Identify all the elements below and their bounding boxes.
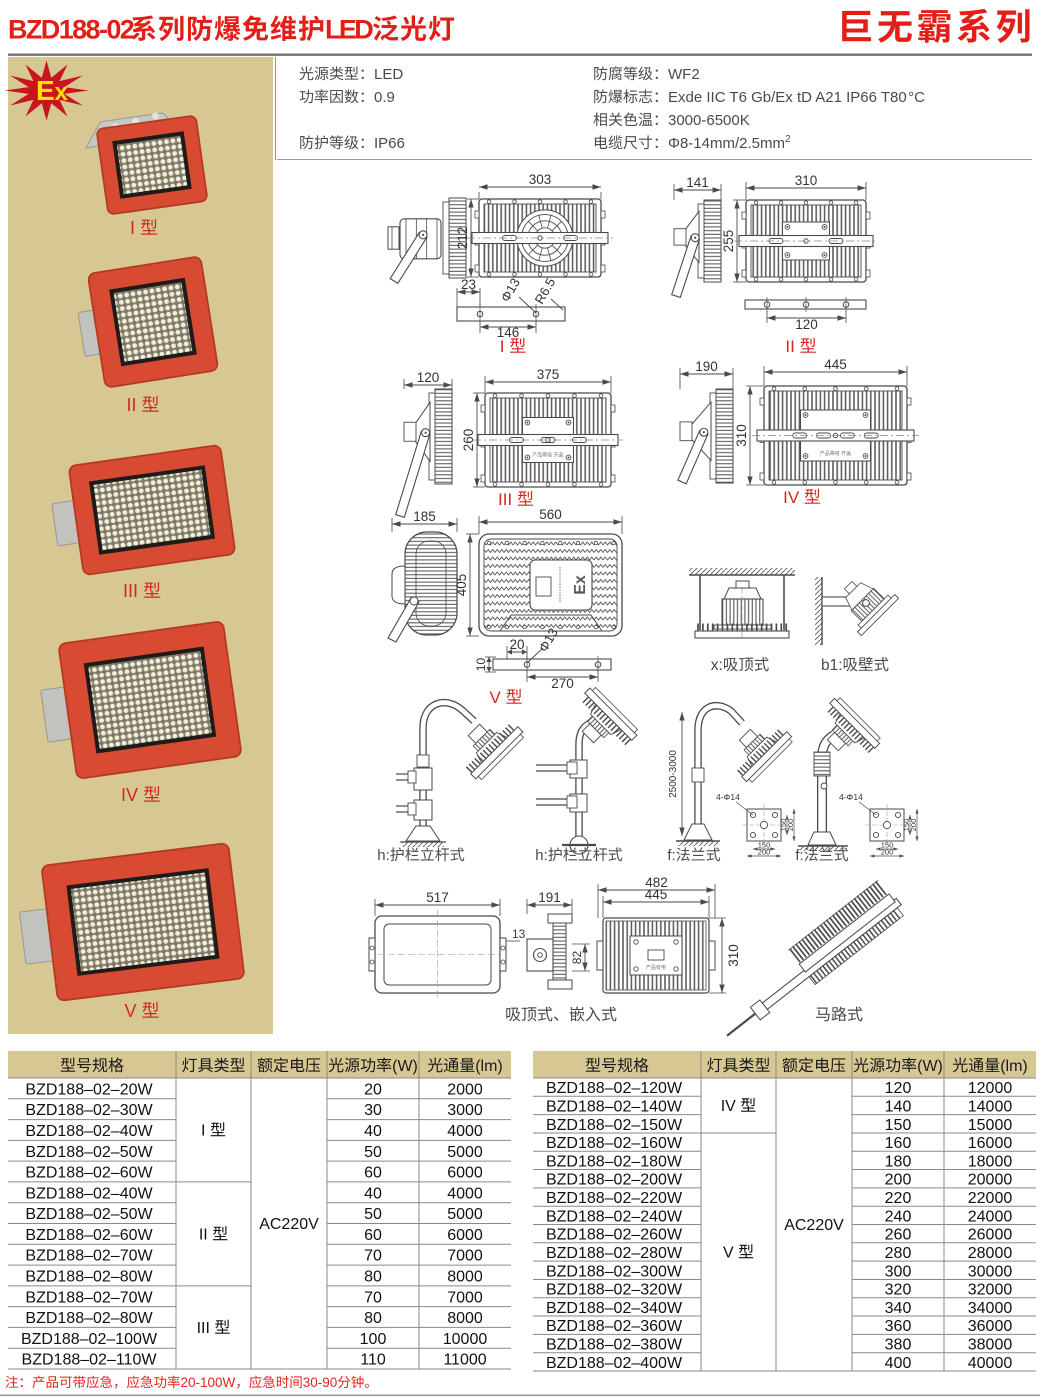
svg-text:240: 240 (885, 1208, 912, 1225)
svg-text:I: I (130, 218, 135, 238)
svg-text:V: V (723, 1245, 734, 1262)
svg-text:38000: 38000 (968, 1337, 1013, 1354)
svg-text:24000: 24000 (968, 1208, 1013, 1225)
svg-text:141: 141 (686, 175, 709, 190)
svg-text:Ex: Ex (572, 575, 589, 595)
svg-text:BZD188–02–50W: BZD188–02–50W (25, 1206, 153, 1223)
svg-text:4-Φ14: 4-Φ14 (716, 792, 740, 802)
svg-text:375: 375 (537, 367, 560, 382)
svg-text:b1:: b1: (821, 657, 843, 674)
svg-text:4000: 4000 (447, 1123, 483, 1140)
svg-text:32000: 32000 (968, 1282, 1013, 1299)
svg-text:23: 23 (461, 277, 476, 292)
svg-text:II: II (126, 395, 136, 415)
svg-text:20: 20 (509, 637, 524, 652)
svg-text:IV: IV (783, 488, 800, 507)
svg-text:II: II (785, 337, 794, 356)
svg-text:445: 445 (824, 357, 847, 372)
svg-text:4-Φ14: 4-Φ14 (839, 792, 863, 802)
svg-text:100: 100 (360, 1331, 387, 1348)
svg-text:I: I (500, 337, 505, 356)
svg-text:360: 360 (885, 1318, 912, 1335)
svg-text:13: 13 (512, 927, 526, 941)
svg-text:V: V (124, 1001, 136, 1021)
svg-text:BZD188–02–320W: BZD188–02–320W (546, 1282, 683, 1299)
svg-text:BZD188–02–80W: BZD188–02–80W (25, 1268, 153, 1285)
svg-text:BZD188–02–40W: BZD188–02–40W (25, 1185, 153, 1202)
svg-text:380: 380 (885, 1337, 912, 1354)
svg-text:3000: 3000 (447, 1102, 483, 1119)
svg-text:80: 80 (364, 1310, 382, 1327)
svg-text:160: 160 (885, 1135, 912, 1152)
svg-text:445: 445 (645, 887, 668, 902)
svg-text:产品等级 开盖: 产品等级 开盖 (532, 452, 563, 459)
svg-text:200: 200 (881, 848, 894, 857)
svg-text:200: 200 (758, 848, 771, 857)
svg-text:BZD188–02–100W: BZD188–02–100W (21, 1331, 158, 1348)
svg-text:36000: 36000 (968, 1318, 1013, 1335)
svg-text:IP66: IP66 (374, 135, 405, 152)
svg-text:60: 60 (364, 1165, 382, 1182)
svg-text:BZD188–02–60W: BZD188–02–60W (25, 1165, 153, 1182)
svg-text:LED: LED (374, 66, 403, 83)
svg-text:10000: 10000 (443, 1331, 488, 1348)
svg-text:BZD188–02–70W: BZD188–02–70W (25, 1289, 153, 1306)
svg-text:82: 82 (570, 951, 584, 965)
svg-text:200: 200 (885, 1172, 912, 1189)
svg-text:40000: 40000 (968, 1355, 1013, 1372)
svg-text:AC220V: AC220V (259, 1216, 319, 1233)
svg-text:200: 200 (786, 819, 795, 832)
svg-text:30-90: 30-90 (303, 1375, 338, 1390)
svg-text:V: V (489, 688, 501, 707)
svg-text:70: 70 (364, 1289, 382, 1306)
svg-text:150: 150 (885, 1117, 912, 1134)
svg-text:2: 2 (785, 134, 791, 145)
svg-text:560: 560 (539, 507, 562, 522)
svg-text:III: III (498, 490, 512, 509)
svg-text:BZD188–02–380W: BZD188–02–380W (546, 1337, 683, 1354)
svg-text:60: 60 (364, 1227, 382, 1244)
svg-text:310: 310 (726, 944, 741, 967)
svg-text:18000: 18000 (968, 1153, 1013, 1170)
svg-text:310: 310 (734, 424, 749, 447)
svg-text:120: 120 (795, 317, 818, 332)
svg-text:BZD188–02–20W: BZD188–02–20W (25, 1081, 153, 1098)
svg-text:IV: IV (121, 785, 138, 805)
svg-text:BZD188–02–300W: BZD188–02–300W (546, 1263, 683, 1280)
svg-text:303: 303 (529, 172, 552, 187)
svg-text:50: 50 (364, 1144, 382, 1161)
svg-text:Φ8-14mm/2.5mm: Φ8-14mm/2.5mm (668, 135, 785, 152)
svg-text:310: 310 (795, 173, 818, 188)
svg-text:300: 300 (885, 1263, 912, 1280)
svg-text:III: III (197, 1320, 210, 1337)
svg-text:产品有电: 产品有电 (646, 964, 666, 971)
svg-text:180: 180 (885, 1153, 912, 1170)
svg-text:0.9: 0.9 (374, 89, 395, 106)
svg-text:15000: 15000 (968, 1117, 1013, 1134)
svg-text:III: III (123, 581, 138, 601)
svg-text:E: E (36, 75, 55, 106)
svg-text:BZD188–02–180W: BZD188–02–180W (546, 1153, 683, 1170)
svg-text:260: 260 (885, 1227, 912, 1244)
svg-text:BZD188–02–60W: BZD188–02–60W (25, 1227, 153, 1244)
svg-text:8000: 8000 (447, 1310, 483, 1327)
svg-text:BZD188–02–280W: BZD188–02–280W (546, 1245, 683, 1262)
svg-text:x: x (55, 79, 69, 106)
svg-text:255: 255 (721, 230, 736, 253)
svg-text:405: 405 (454, 574, 469, 597)
svg-text:30000: 30000 (968, 1263, 1013, 1280)
svg-text:20: 20 (364, 1081, 382, 1098)
svg-text:BZD188–02–400W: BZD188–02–400W (546, 1355, 683, 1372)
svg-text:28000: 28000 (968, 1245, 1013, 1262)
svg-text:BZD188–02–220W: BZD188–02–220W (546, 1190, 683, 1207)
svg-text:h:: h: (377, 847, 390, 864)
svg-text:190: 190 (695, 359, 718, 374)
svg-text:BZD188–02–120W: BZD188–02–120W (546, 1080, 683, 1097)
svg-text:BZD188–02–160W: BZD188–02–160W (546, 1135, 683, 1152)
svg-text:BZD188–02–140W: BZD188–02–140W (546, 1098, 683, 1115)
svg-text:(W): (W) (392, 1058, 418, 1075)
svg-text:BZD188-02: BZD188-02 (8, 15, 134, 45)
svg-text:70: 70 (364, 1248, 382, 1265)
svg-text:320: 320 (885, 1282, 912, 1299)
svg-text:120: 120 (885, 1080, 912, 1097)
svg-text:BZD188–02–150W: BZD188–02–150W (546, 1117, 683, 1134)
svg-text:280: 280 (885, 1245, 912, 1262)
svg-text:BZD188–02–50W: BZD188–02–50W (25, 1144, 153, 1161)
svg-text:400: 400 (885, 1355, 912, 1372)
svg-text:212: 212 (455, 227, 470, 250)
svg-text:7000: 7000 (447, 1248, 483, 1265)
svg-text:26000: 26000 (968, 1227, 1013, 1244)
svg-text:°C: °C (908, 89, 925, 106)
svg-text:14000: 14000 (968, 1098, 1013, 1115)
svg-text:6000: 6000 (447, 1165, 483, 1182)
svg-text:BZD188–02–200W: BZD188–02–200W (546, 1172, 683, 1189)
svg-text:II: II (199, 1226, 208, 1243)
svg-text:191: 191 (538, 890, 561, 905)
svg-text:I: I (201, 1123, 205, 1140)
svg-text:f:: f: (795, 847, 803, 864)
svg-text:140: 140 (885, 1098, 912, 1115)
svg-text:x:: x: (711, 657, 723, 674)
svg-text:3000-6500K: 3000-6500K (668, 112, 750, 129)
svg-text:f:: f: (667, 847, 675, 864)
svg-text:30: 30 (364, 1102, 382, 1119)
svg-text:2500-3000: 2500-3000 (668, 750, 679, 798)
svg-text:220: 220 (885, 1190, 912, 1207)
svg-text:5000: 5000 (447, 1206, 483, 1223)
svg-text:270: 270 (551, 676, 574, 691)
svg-text:BZD188–02–40W: BZD188–02–40W (25, 1123, 153, 1140)
svg-text:h:: h: (535, 847, 548, 864)
svg-text:BZD188–02–260W: BZD188–02–260W (546, 1227, 683, 1244)
svg-text:260: 260 (461, 429, 476, 452)
svg-text:BZD188–02–110W: BZD188–02–110W (22, 1352, 158, 1369)
svg-text:WF2: WF2 (668, 66, 700, 83)
svg-text:BZD188–02–80W: BZD188–02–80W (25, 1310, 153, 1327)
svg-text:16000: 16000 (968, 1135, 1013, 1152)
svg-text:340: 340 (885, 1300, 912, 1317)
svg-text:4000: 4000 (447, 1185, 483, 1202)
svg-text:2000: 2000 (447, 1081, 483, 1098)
svg-text:185: 185 (413, 509, 436, 524)
svg-text:BZD188–02–70W: BZD188–02–70W (25, 1248, 153, 1265)
svg-text:20-100W: 20-100W (181, 1375, 236, 1390)
svg-text:BZD188–02–360W: BZD188–02–360W (546, 1318, 683, 1335)
svg-text:40: 40 (364, 1123, 382, 1140)
svg-text:11000: 11000 (443, 1352, 486, 1369)
svg-text:AC220V: AC220V (784, 1217, 844, 1234)
svg-text:110: 110 (360, 1352, 386, 1369)
svg-text:7000: 7000 (447, 1289, 483, 1306)
svg-text:(W): (W) (917, 1058, 943, 1075)
svg-text:产品等级 开盖: 产品等级 开盖 (820, 450, 851, 457)
svg-text:120: 120 (417, 370, 440, 385)
svg-text:(lm): (lm) (1000, 1058, 1028, 1075)
svg-text:BZD188–02–30W: BZD188–02–30W (25, 1102, 153, 1119)
svg-text:BZD188–02–240W: BZD188–02–240W (546, 1208, 683, 1225)
svg-text:Exde IIC T6 Gb/Ex tD A21 IP66: Exde IIC T6 Gb/Ex tD A21 IP66 T80 (668, 89, 907, 106)
svg-text:8000: 8000 (447, 1268, 483, 1285)
svg-text:12000: 12000 (968, 1080, 1013, 1097)
svg-text:34000: 34000 (968, 1300, 1013, 1317)
svg-text:22000: 22000 (968, 1190, 1013, 1207)
svg-text:517: 517 (426, 890, 449, 905)
svg-text:(lm): (lm) (475, 1058, 503, 1075)
svg-text:40: 40 (364, 1185, 382, 1202)
svg-text:10: 10 (474, 658, 488, 672)
svg-text:IV: IV (721, 1098, 736, 1115)
svg-text:200: 200 (909, 819, 918, 832)
svg-text:20000: 20000 (968, 1172, 1013, 1189)
svg-text:LED: LED (325, 15, 373, 45)
svg-text:50: 50 (364, 1206, 382, 1223)
svg-text:80: 80 (364, 1268, 382, 1285)
svg-text:6000: 6000 (447, 1227, 483, 1244)
svg-text:5000: 5000 (447, 1144, 483, 1161)
svg-text:BZD188–02–340W: BZD188–02–340W (546, 1300, 683, 1317)
